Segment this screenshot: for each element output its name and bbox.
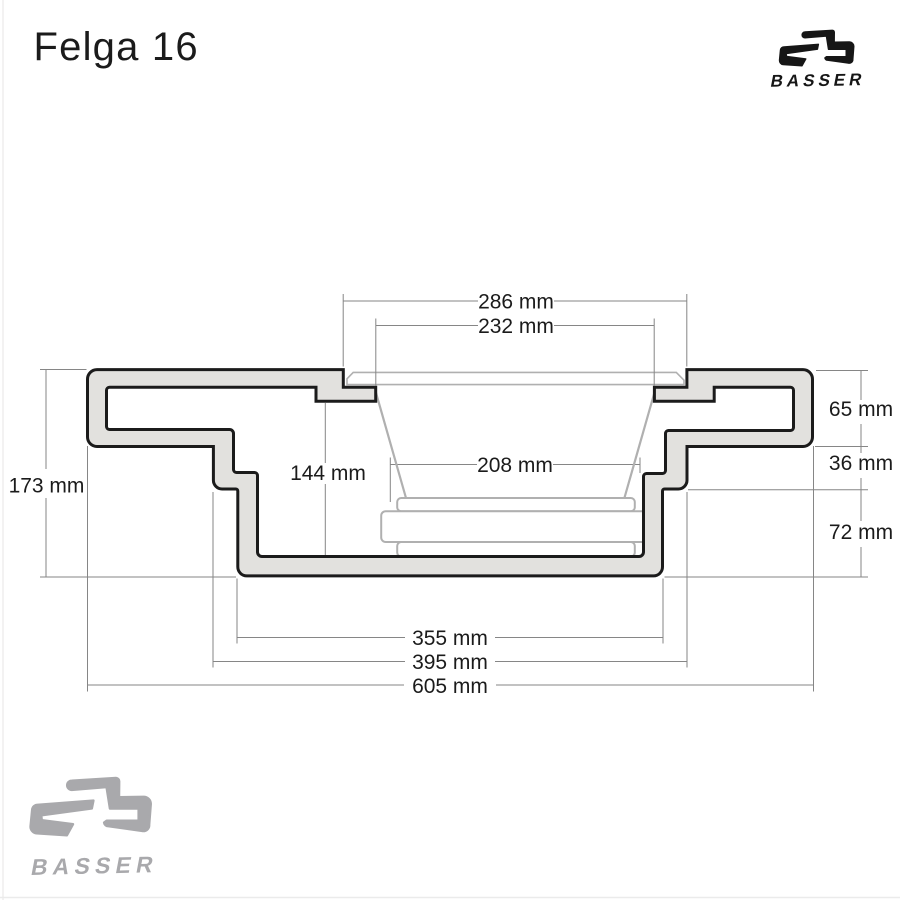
svg-text:144 mm: 144 mm: [290, 462, 366, 485]
svg-text:72 mm: 72 mm: [829, 521, 893, 544]
svg-text:395 mm: 395 mm: [412, 651, 488, 674]
svg-text:36 mm: 36 mm: [829, 452, 893, 475]
svg-text:173 mm: 173 mm: [9, 475, 85, 498]
svg-text:208 mm: 208 mm: [477, 454, 553, 477]
svg-text:65 mm: 65 mm: [829, 398, 893, 421]
svg-text:Felga 16: Felga 16: [34, 25, 199, 69]
svg-text:232 mm: 232 mm: [478, 315, 554, 338]
svg-text:605 mm: 605 mm: [412, 675, 488, 698]
svg-text:286 mm: 286 mm: [478, 291, 554, 314]
svg-text:355 mm: 355 mm: [412, 627, 488, 650]
